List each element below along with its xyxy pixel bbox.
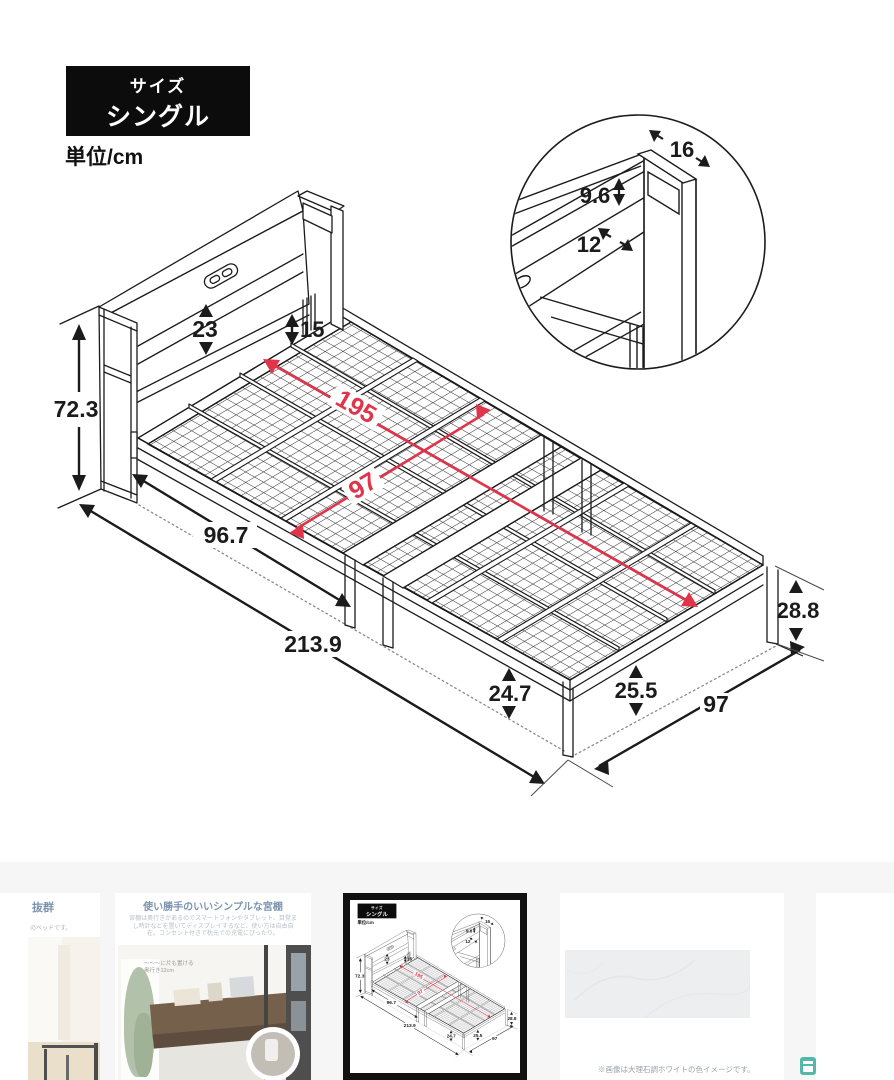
svg-text:12: 12 bbox=[577, 232, 601, 257]
svg-text:23: 23 bbox=[192, 316, 218, 342]
svg-text:サイズ: サイズ bbox=[130, 76, 187, 96]
svg-text:シングル: シングル bbox=[106, 103, 210, 131]
svg-text:25.5: 25.5 bbox=[615, 678, 658, 703]
svg-text:96.7: 96.7 bbox=[204, 522, 249, 548]
svg-text:97: 97 bbox=[703, 691, 729, 717]
svg-text:9.6: 9.6 bbox=[580, 183, 611, 208]
svg-text:単位/cm: 単位/cm bbox=[65, 145, 143, 169]
svg-text:15: 15 bbox=[300, 317, 324, 342]
svg-text:28.8: 28.8 bbox=[777, 598, 820, 623]
svg-text:213.9: 213.9 bbox=[284, 631, 342, 657]
svg-text:16: 16 bbox=[670, 137, 694, 162]
svg-text:24.7: 24.7 bbox=[489, 681, 532, 706]
svg-text:72.3: 72.3 bbox=[54, 396, 99, 422]
